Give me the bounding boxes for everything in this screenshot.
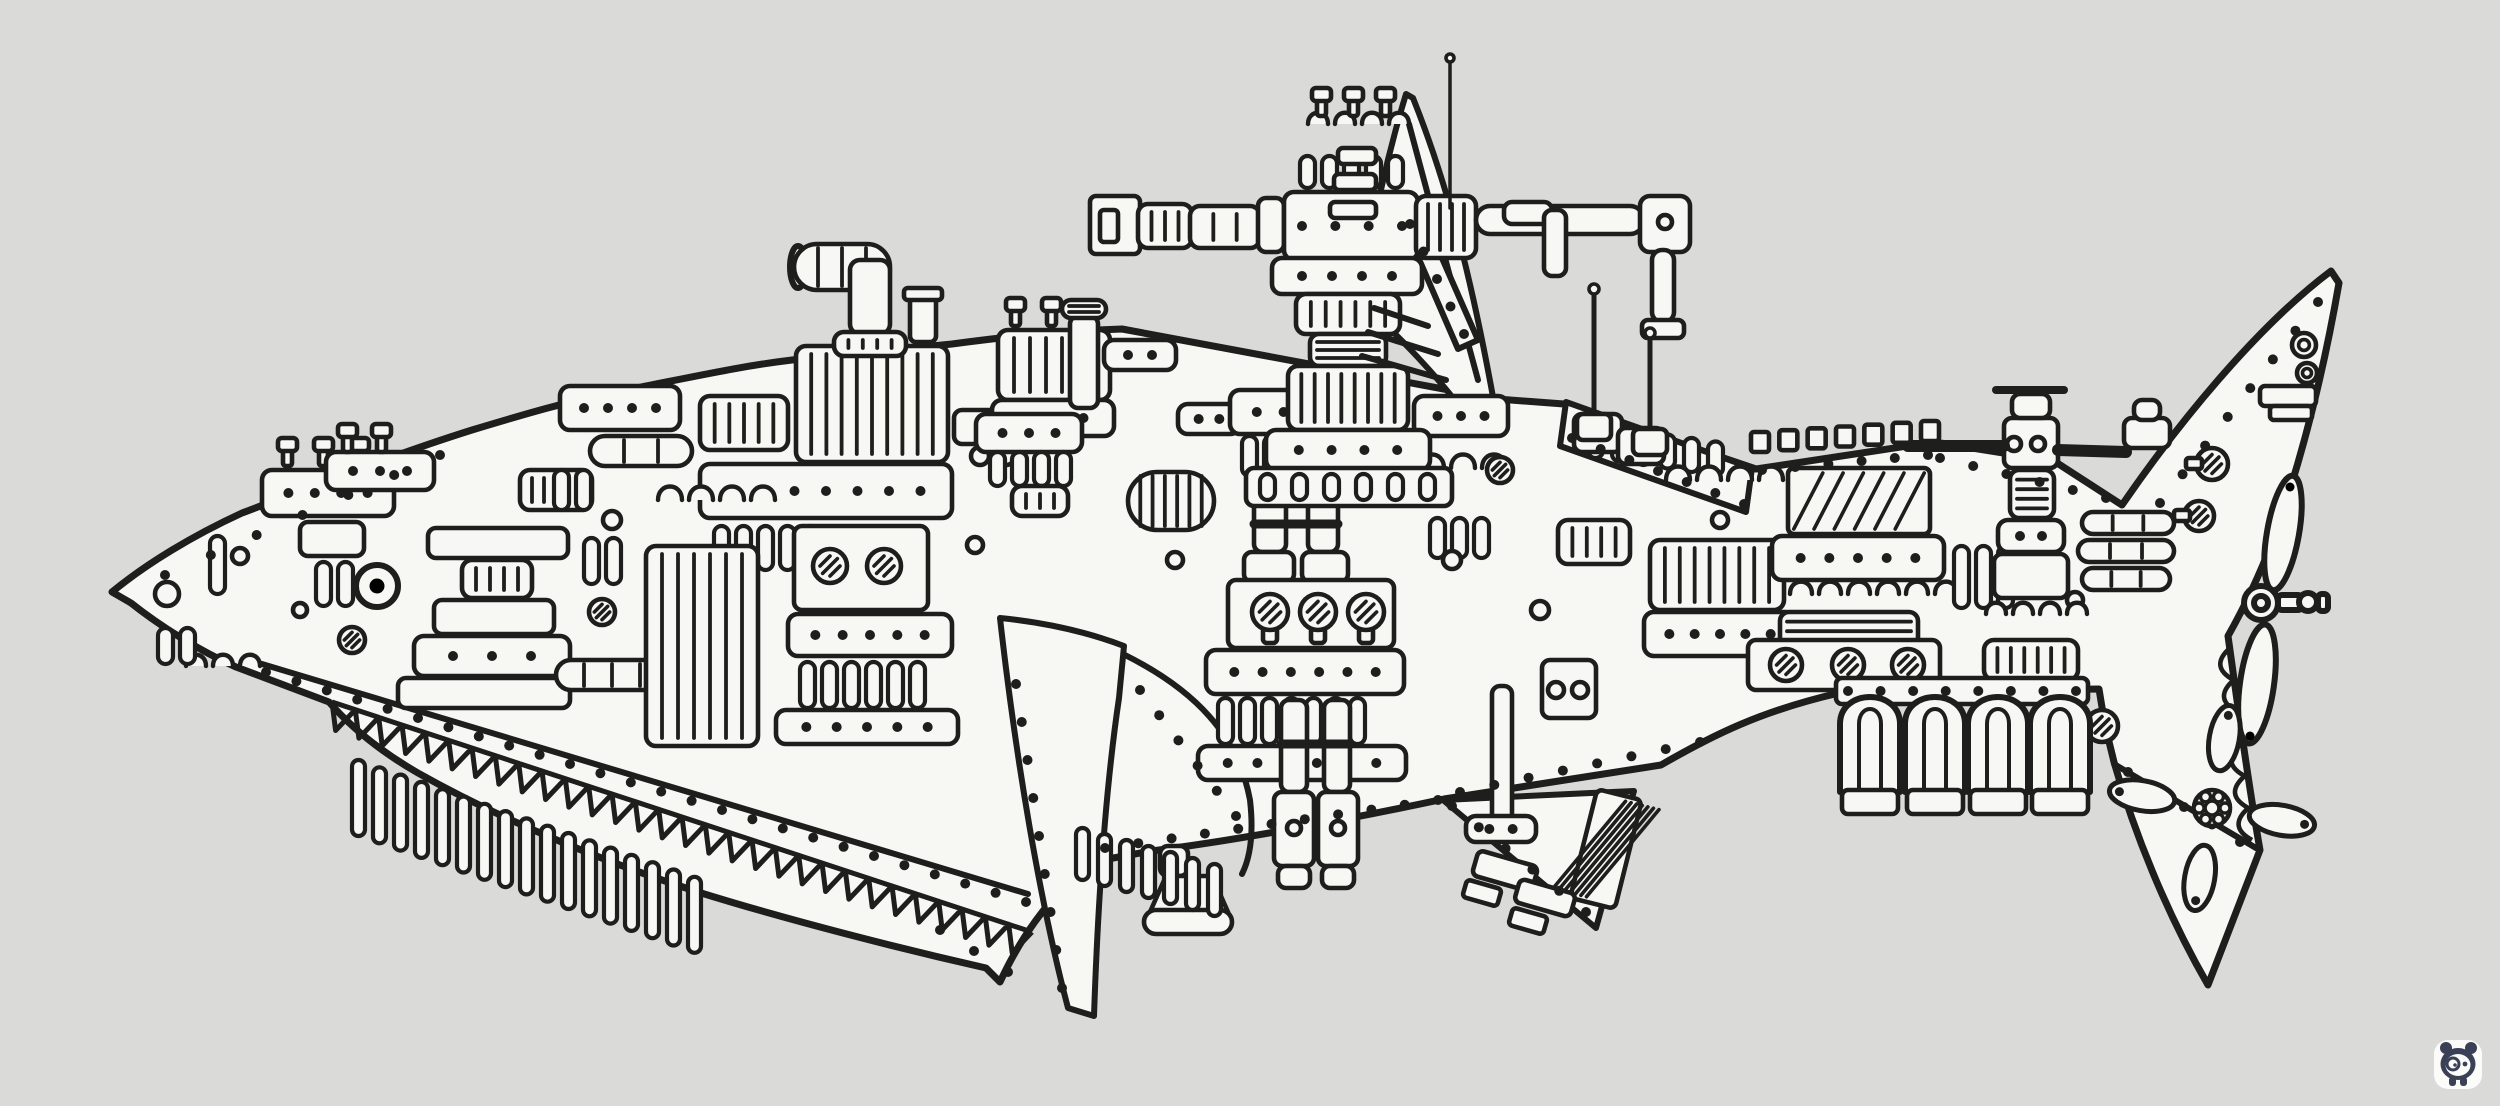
prop-hub-center: [2254, 596, 2268, 610]
panda-leg-right: [2460, 1077, 2467, 1086]
panda-eye-dot: [2453, 1063, 2457, 1067]
eye-pupil: [370, 579, 385, 594]
blade-rivet: [2286, 483, 2295, 492]
ink-drawing-canvas: [0, 0, 2500, 1106]
blade-rivet: [2246, 732, 2255, 741]
panda-right-eye: [2463, 1062, 2468, 1067]
wing-nut: [2299, 593, 2317, 611]
shark-eye: [356, 565, 398, 607]
panda-watermark-icon: [2434, 1040, 2482, 1089]
scanned-ink-drawing: [0, 0, 2500, 1106]
wing-nut-cap: [2318, 594, 2328, 611]
panda-leg-left: [2449, 1077, 2456, 1086]
